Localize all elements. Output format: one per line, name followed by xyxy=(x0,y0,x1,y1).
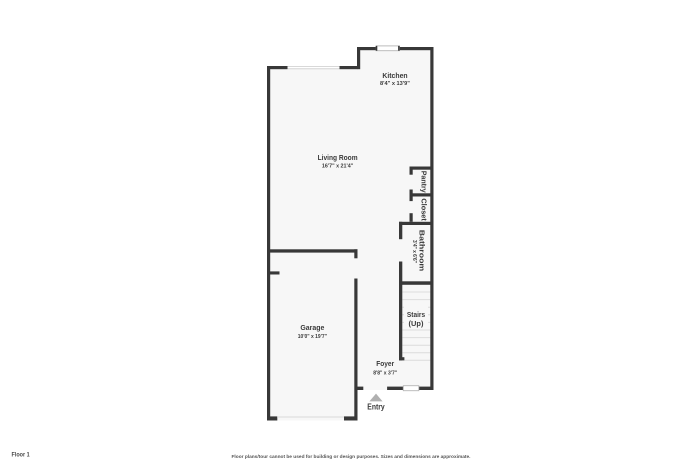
svg-text:(Up): (Up) xyxy=(409,319,424,328)
svg-text:16'7" x 21'4": 16'7" x 21'4" xyxy=(322,163,354,169)
svg-text:Pantry: Pantry xyxy=(420,171,429,194)
svg-text:Floor plans/tour cannot be use: Floor plans/tour cannot be used for buil… xyxy=(232,454,472,460)
svg-text:Closet: Closet xyxy=(420,198,429,221)
svg-text:Living Room: Living Room xyxy=(318,153,358,162)
svg-text:8'4" x 13'9": 8'4" x 13'9" xyxy=(380,81,410,87)
svg-text:10'0" x 19'7": 10'0" x 19'7" xyxy=(298,334,327,340)
svg-text:Stairs: Stairs xyxy=(407,310,425,319)
svg-text:Entry: Entry xyxy=(367,403,385,412)
svg-text:8'8" x 3'7": 8'8" x 3'7" xyxy=(373,370,397,376)
svg-text:Garage: Garage xyxy=(300,323,324,332)
svg-text:Bathroom: Bathroom xyxy=(418,230,427,272)
svg-text:3'4" x 6'6": 3'4" x 6'6" xyxy=(411,240,417,263)
svg-text:Foyer: Foyer xyxy=(376,359,394,368)
svg-text:Floor 1: Floor 1 xyxy=(12,451,31,458)
svg-text:Kitchen: Kitchen xyxy=(382,71,408,80)
